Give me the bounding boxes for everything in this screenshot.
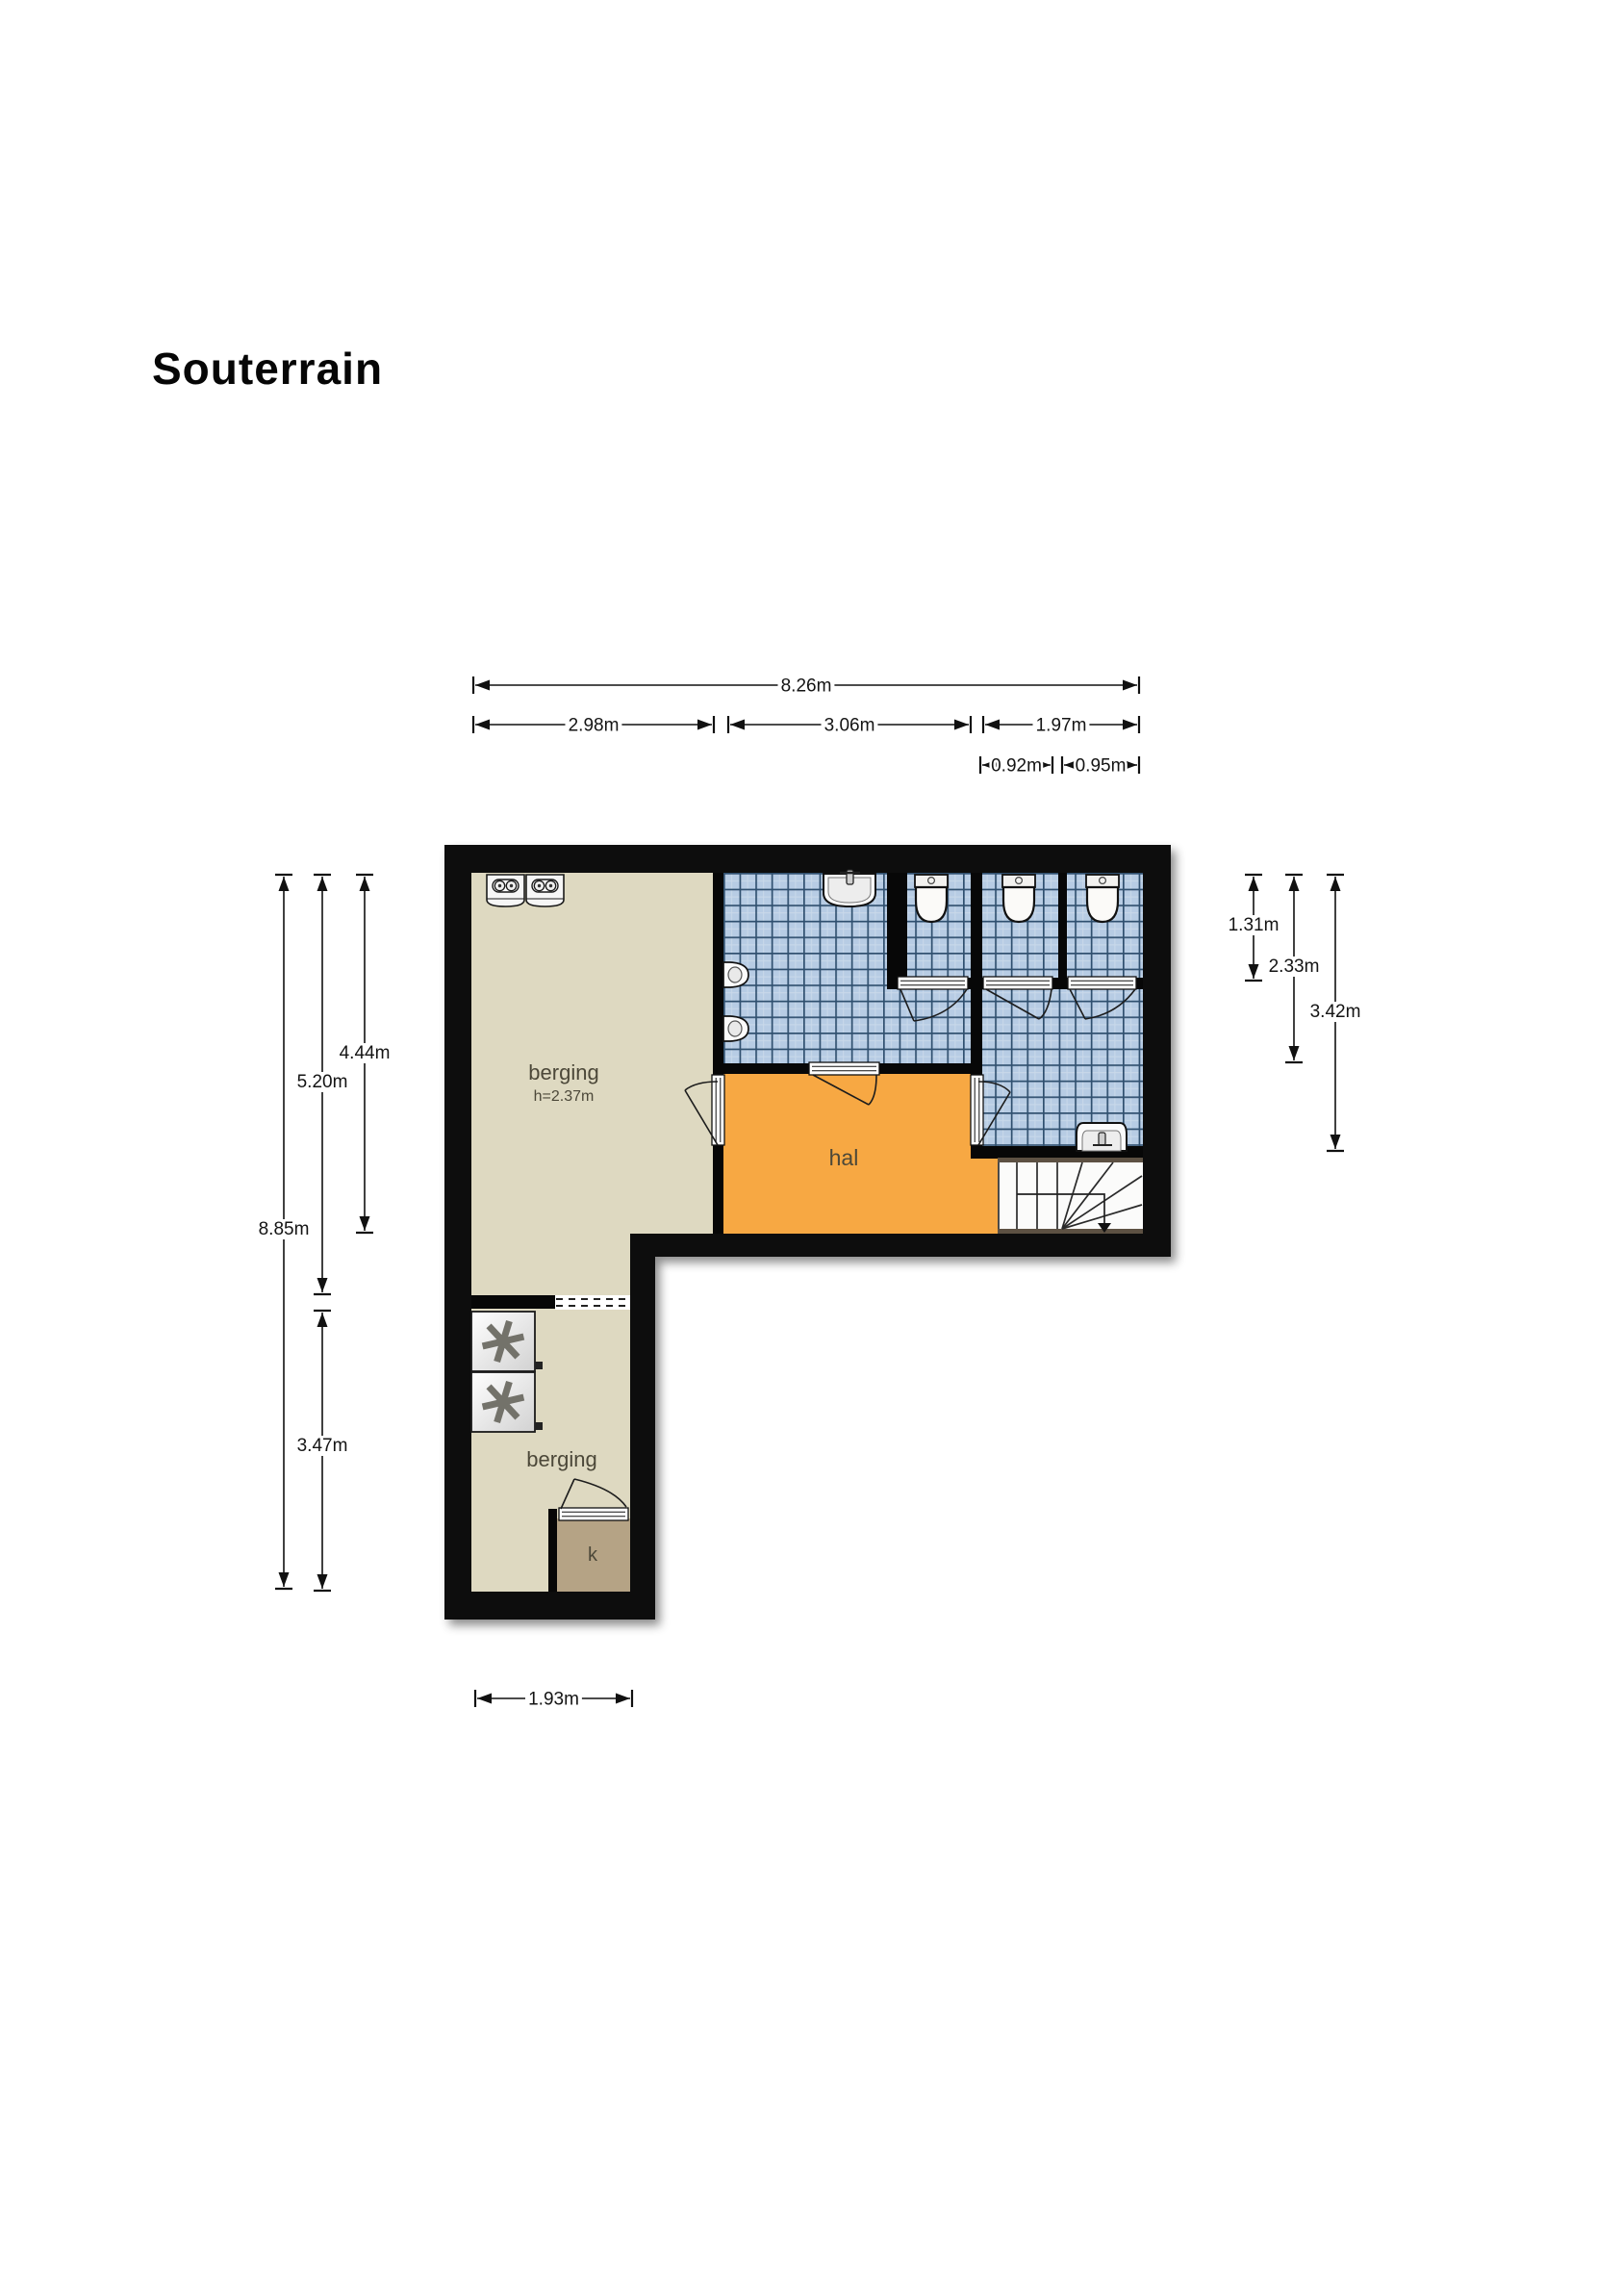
- svg-text:1.93m: 1.93m: [528, 1690, 579, 1710]
- svg-text:berging: berging: [526, 1447, 596, 1471]
- svg-text:5.20m: 5.20m: [297, 1072, 348, 1092]
- svg-text:8.85m: 8.85m: [259, 1219, 310, 1239]
- svg-text:k: k: [588, 1544, 598, 1566]
- svg-text:1.97m: 1.97m: [1036, 716, 1087, 736]
- svg-text:0.95m: 0.95m: [1076, 756, 1127, 777]
- svg-text:1.31m: 1.31m: [1229, 915, 1280, 935]
- svg-text:2.98m: 2.98m: [569, 716, 620, 736]
- svg-text:3.47m: 3.47m: [297, 1436, 348, 1456]
- svg-text:4.44m: 4.44m: [340, 1043, 391, 1063]
- svg-text:3.06m: 3.06m: [824, 716, 875, 736]
- svg-text:berging: berging: [528, 1060, 598, 1084]
- svg-text:2.33m: 2.33m: [1269, 957, 1320, 977]
- svg-text:3.42m: 3.42m: [1310, 1002, 1361, 1022]
- svg-text:8.26m: 8.26m: [781, 676, 832, 697]
- svg-text:0.92m: 0.92m: [991, 756, 1042, 777]
- svg-text:Souterrain: Souterrain: [152, 344, 383, 394]
- svg-text:hal: hal: [829, 1145, 859, 1170]
- svg-text:h=2.37m: h=2.37m: [534, 1088, 595, 1105]
